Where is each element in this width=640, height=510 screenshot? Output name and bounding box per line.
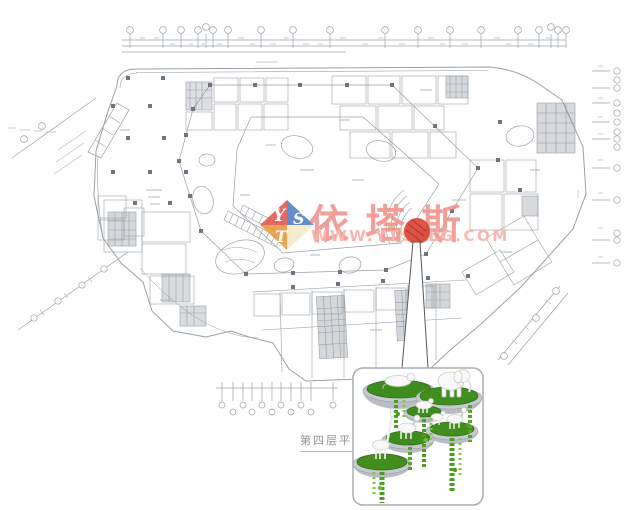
- screenshot-canvas: Y S T 依塔斯 WWW.YTSBLG.COM 第四层平面: [0, 0, 640, 510]
- location-marker: [404, 218, 430, 244]
- detail-inset: [353, 368, 483, 505]
- callout-overlay: [0, 0, 640, 510]
- callout-pointer: [402, 242, 428, 368]
